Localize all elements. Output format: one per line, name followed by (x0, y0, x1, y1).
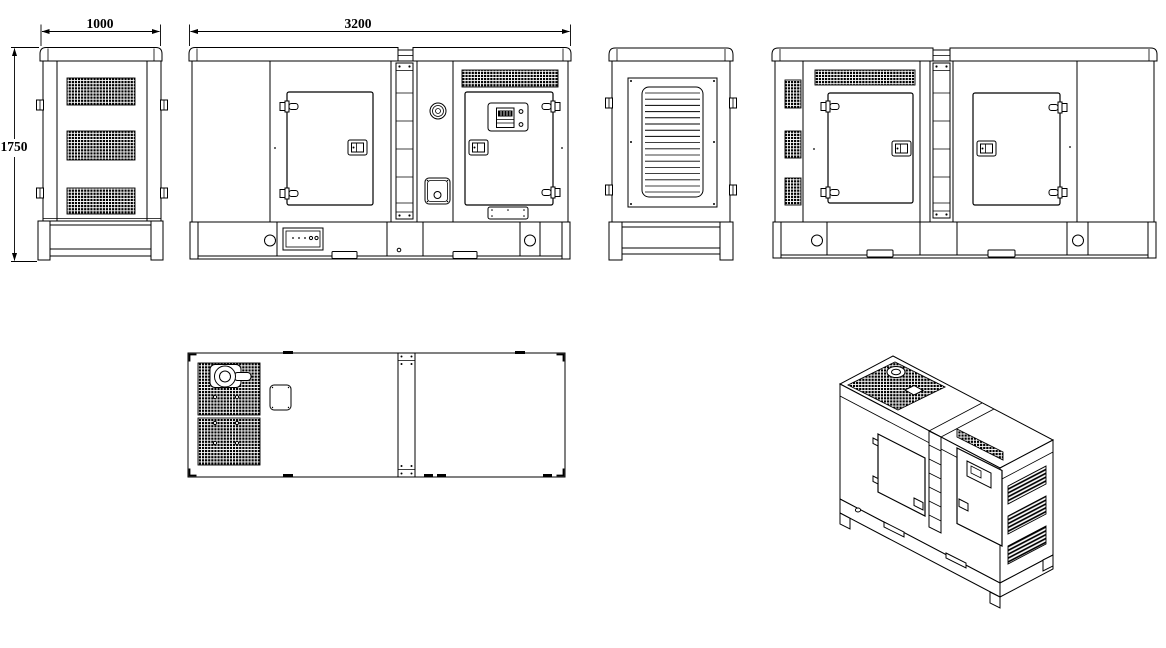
canopy-roof-cap (40, 48, 162, 62)
roof-hatch (270, 385, 291, 410)
emblem (430, 103, 446, 119)
side-vent-grille (785, 178, 801, 205)
door-latch (469, 140, 488, 155)
side-vent-grille (785, 80, 801, 108)
end-view-rear (606, 48, 737, 260)
base-skid (190, 222, 570, 259)
dimension-width-label: 1000 (87, 16, 114, 31)
access-door-left (821, 93, 913, 203)
dimension-length-label: 3200 (345, 16, 372, 31)
base-skid (38, 221, 163, 260)
door-hinge (730, 98, 737, 108)
panel-button (519, 110, 523, 114)
top-view (188, 351, 565, 477)
door-latch (348, 140, 367, 155)
side-vent-grille (785, 131, 801, 158)
louvre-grille (642, 87, 703, 197)
mesh-grille-middle (67, 131, 135, 160)
roof-mesh-panel-2 (198, 418, 260, 465)
drawing-svg: 1000 3200 1750 (0, 0, 1166, 648)
isometric-view (840, 356, 1053, 608)
access-door-control (465, 92, 560, 205)
technical-drawing-canvas: 1000 3200 1750 (0, 0, 1166, 648)
door-hinge (37, 100, 44, 110)
end-view-front (37, 48, 168, 261)
fuel-filler-recess (425, 178, 450, 204)
panel-button (519, 123, 523, 127)
lifting-hole (265, 235, 276, 246)
canopy-roof-cap-left (772, 48, 933, 61)
door-hinge (161, 188, 168, 198)
canopy-roof-cap-right (413, 48, 571, 62)
mesh-grille-bottom (67, 188, 135, 214)
door-latch (892, 141, 911, 156)
terminal-plate (283, 228, 323, 250)
mesh-vent-strip (815, 70, 915, 85)
dimension-height-label: 1750 (1, 139, 28, 154)
skid-tab (332, 252, 357, 259)
base-skid (609, 222, 733, 260)
iso-exhaust-outlet (887, 367, 905, 378)
canopy-roof-cap-right (950, 48, 1157, 61)
mesh-grille-top (67, 78, 135, 105)
access-door-right (973, 93, 1067, 205)
side-view-b (772, 48, 1157, 258)
lifting-hole (812, 235, 823, 246)
canopy-roof-cap-left (189, 48, 398, 62)
joint-strip (933, 63, 950, 218)
skid-tab (867, 250, 893, 257)
door-hinge (606, 98, 613, 108)
iso-joint-strip (929, 431, 941, 533)
door-hinge (37, 188, 44, 198)
door-hinge (161, 100, 168, 110)
mesh-vent-strip (462, 70, 558, 87)
door-hinge (730, 185, 737, 195)
door-hinge (606, 185, 613, 195)
canopy-roof-cap (609, 48, 733, 61)
side-view-a (189, 48, 571, 260)
skid-tab (453, 252, 477, 259)
access-door-left (280, 92, 373, 205)
lifting-hole (525, 235, 536, 246)
lifting-hole (1073, 235, 1084, 246)
door-latch (977, 141, 996, 156)
base-skid (773, 222, 1156, 258)
control-panel (488, 103, 528, 131)
skid-tab (988, 250, 1015, 257)
joint-strip (396, 63, 413, 219)
vent-plate (488, 207, 528, 219)
